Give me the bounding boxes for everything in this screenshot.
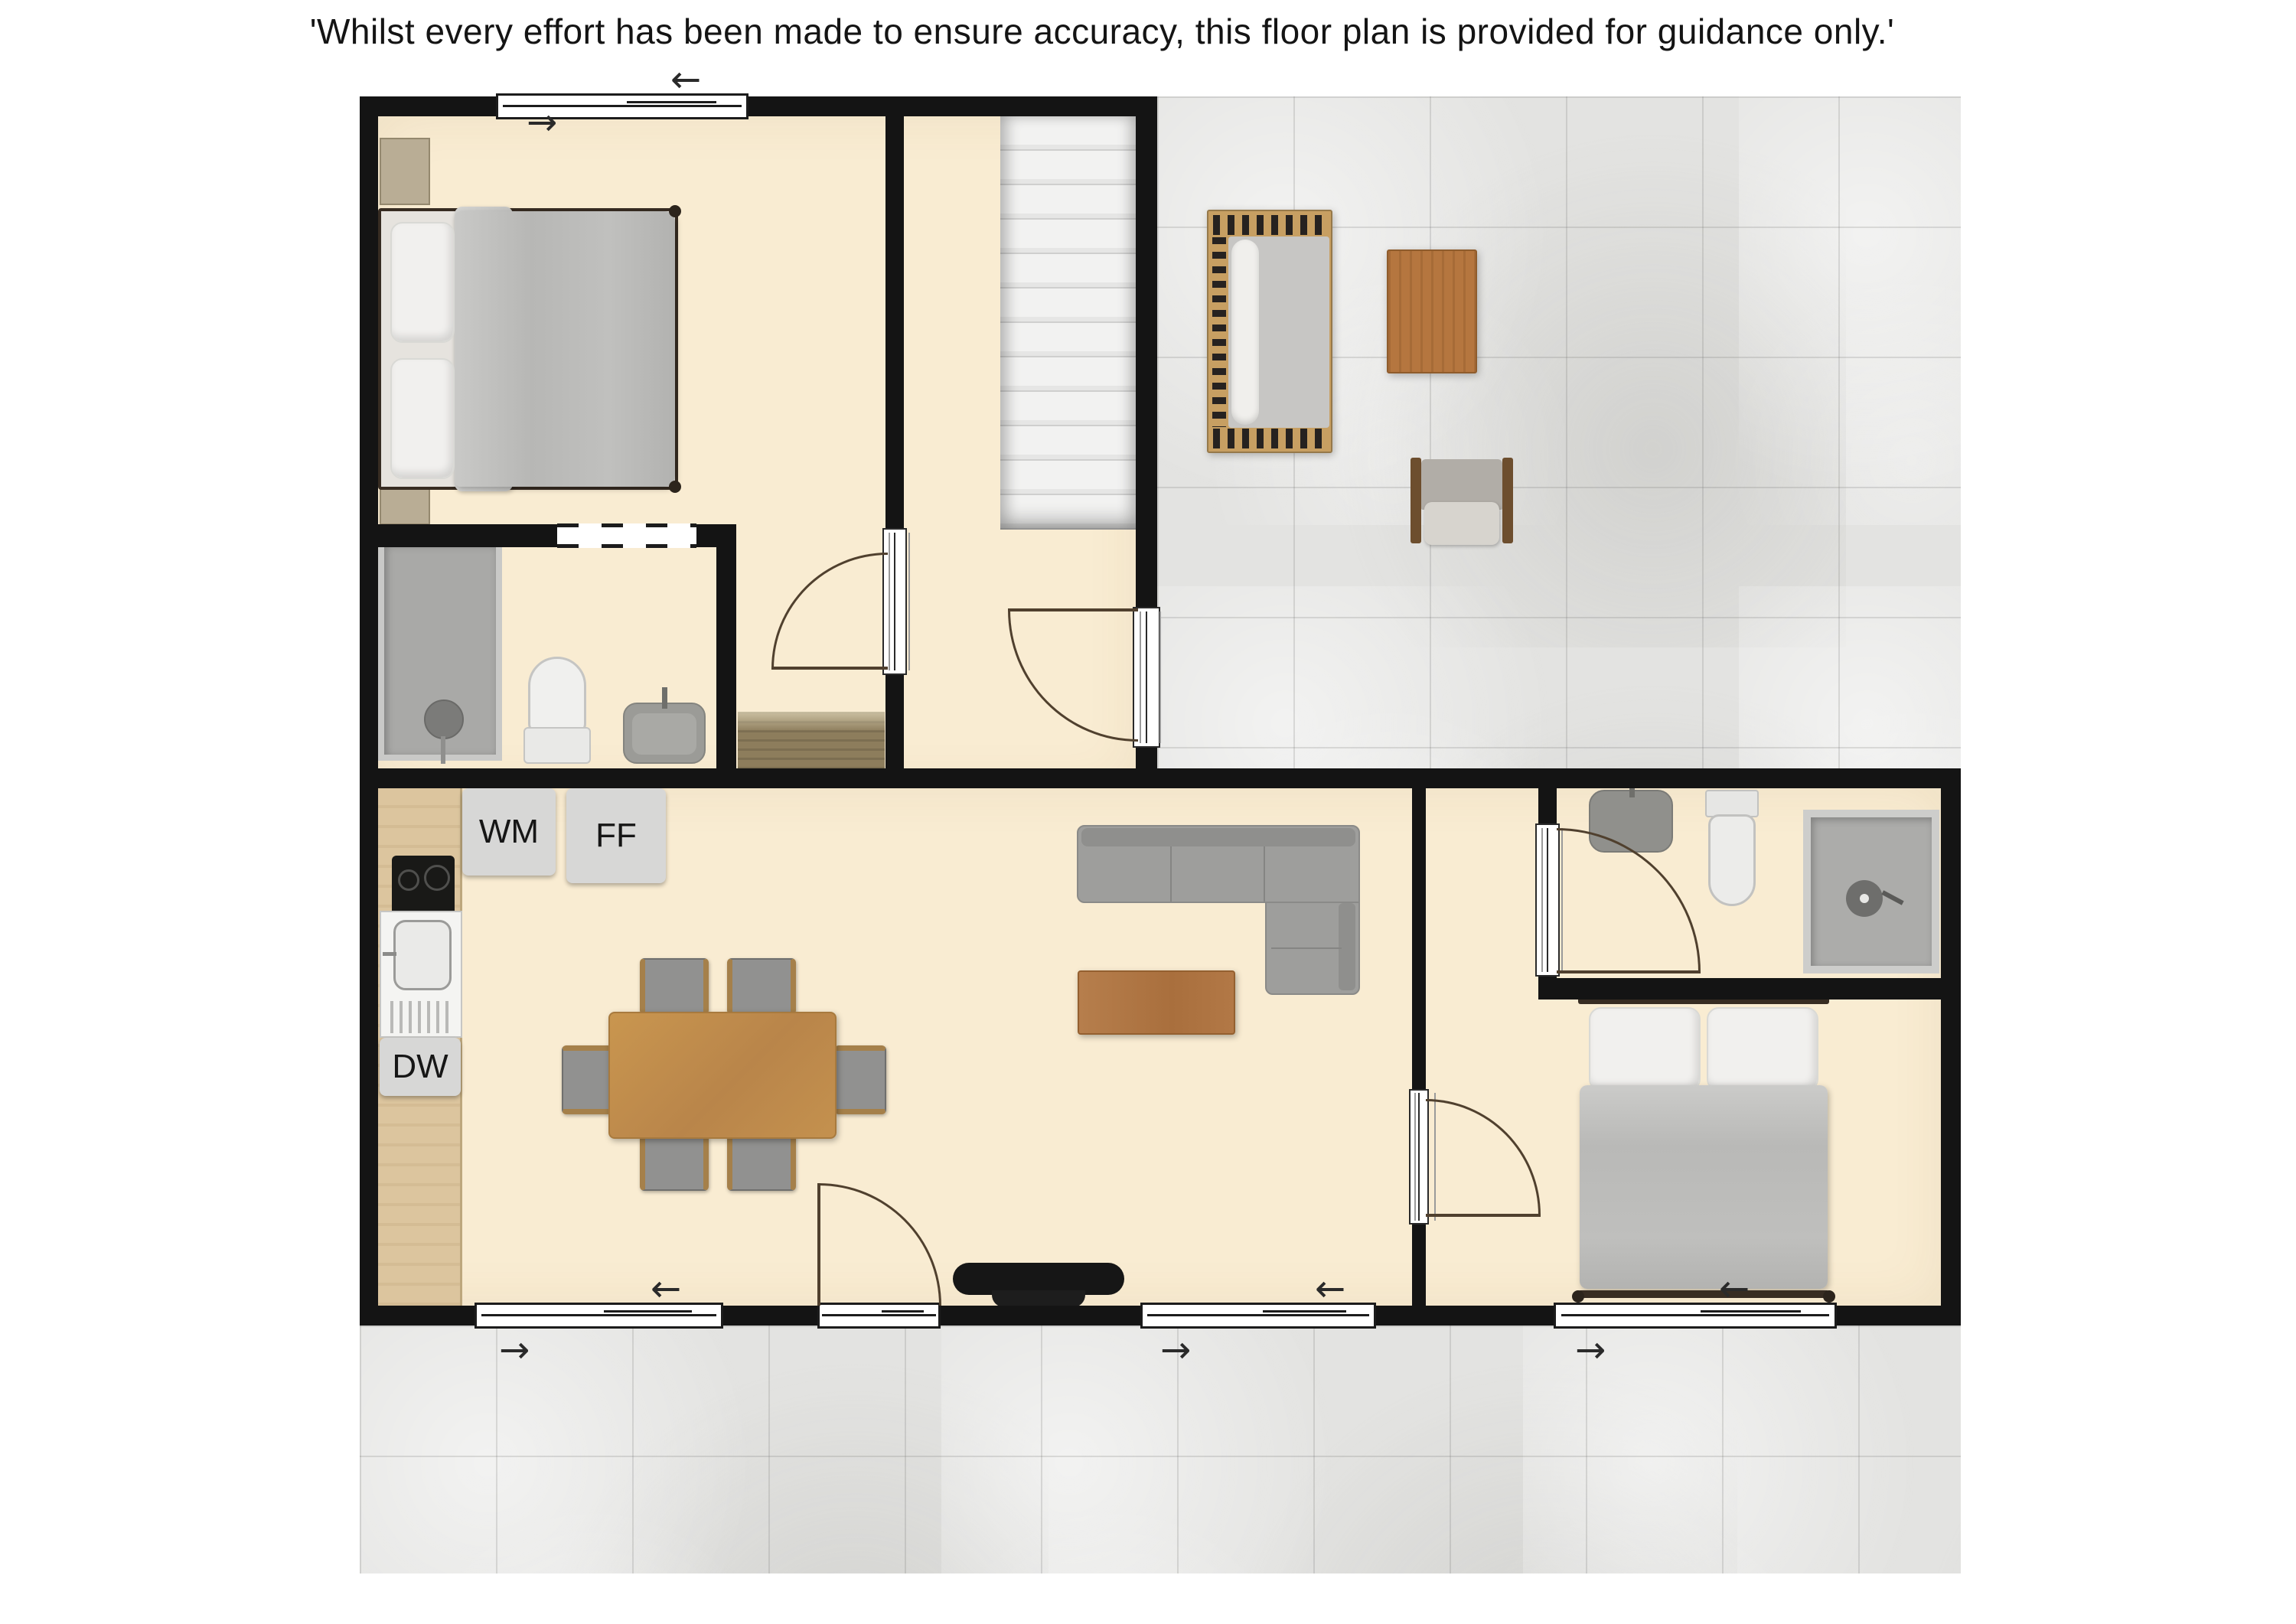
bedside-table-top xyxy=(380,138,430,205)
wood-floor-entry-mat xyxy=(738,712,885,768)
wall-bedroom1-hall xyxy=(885,96,904,788)
dishwasher: DW xyxy=(380,1038,461,1096)
shower-drain-icon xyxy=(424,699,464,739)
sofa-seam xyxy=(1271,947,1342,949)
bed1-duvet xyxy=(455,211,675,487)
bed1-pillow xyxy=(390,222,455,343)
dishwasher-label: DW xyxy=(392,1048,448,1086)
dining-table xyxy=(608,1012,837,1139)
toilet-ensuite xyxy=(1708,814,1756,906)
wall-ensuite-bottom xyxy=(1538,978,1961,1000)
kitchen-drainer xyxy=(390,1001,455,1033)
sofa-seam xyxy=(1170,846,1172,902)
door-leaf-ensuite xyxy=(1557,970,1701,973)
toilet-bathroom xyxy=(528,657,586,733)
garden-chair-seat xyxy=(1424,502,1499,545)
dining-chair xyxy=(562,1045,614,1114)
disclaimer-text: 'Whilst every effort has been made to en… xyxy=(0,11,2204,52)
wall-bathroom-right xyxy=(716,524,736,788)
kitchen-sink-basin xyxy=(393,920,452,990)
shower-tray-bathroom xyxy=(378,537,502,761)
bed2-footboard xyxy=(1578,1290,1829,1298)
garden-sofa-slats xyxy=(1213,215,1328,235)
tap-icon xyxy=(662,687,667,709)
basin-bathroom xyxy=(623,703,706,764)
garden-sofa-slats xyxy=(1212,237,1226,427)
kitchen-tap-icon xyxy=(383,952,396,956)
sofa-seam xyxy=(1264,846,1265,902)
shower-handle-icon xyxy=(1881,890,1903,905)
dining-chair xyxy=(727,958,796,1015)
basin-bowl xyxy=(632,713,696,755)
door-leaf-entrance xyxy=(817,1183,820,1306)
arrow-right-icon: → xyxy=(1160,1332,1191,1368)
sofa-section xyxy=(1265,902,1360,995)
toilet-cistern-ensuite xyxy=(1705,790,1759,817)
dining-chair xyxy=(727,1134,796,1191)
bed1-pillow xyxy=(390,358,455,479)
bed2-post xyxy=(1823,1290,1835,1303)
fridge-freezer: FF xyxy=(566,788,666,883)
coffee-table xyxy=(1078,970,1235,1035)
garden-chair xyxy=(1411,458,1513,548)
bed2-pillow xyxy=(1707,1007,1818,1091)
arrow-right-icon: → xyxy=(527,104,557,141)
dining-chair xyxy=(834,1045,886,1114)
bed1-post xyxy=(669,481,681,493)
door-leaf-hall-patio xyxy=(1008,608,1138,611)
burner-icon xyxy=(424,865,450,891)
fridge-freezer-label: FF xyxy=(595,817,637,855)
shower-head-dot xyxy=(1860,894,1869,903)
bed2-duvet xyxy=(1580,1085,1828,1289)
window-kitchen xyxy=(475,1303,723,1329)
floor-plan-page: 'Whilst every effort has been made to en… xyxy=(0,0,2296,1624)
double-bed-1 xyxy=(378,208,678,490)
staircase xyxy=(1000,116,1137,530)
bed1-post xyxy=(669,205,681,217)
wall-living-bedroom2 xyxy=(1412,788,1426,1306)
corner-sofa xyxy=(1077,825,1360,995)
door-leaf-vestibule xyxy=(771,667,888,670)
bed2-post xyxy=(1572,1290,1584,1303)
door-leaf-bedroom2 xyxy=(1426,1214,1541,1217)
toilet-cistern-bathroom xyxy=(523,727,591,764)
window-bedroom2 xyxy=(1554,1303,1837,1329)
tv-stand xyxy=(992,1290,1085,1307)
arrow-right-icon: → xyxy=(1575,1332,1606,1368)
garden-table xyxy=(1387,249,1477,373)
arrow-left-icon: ← xyxy=(1315,1270,1345,1307)
washing-machine-label: WM xyxy=(479,813,539,851)
arrow-right-icon: → xyxy=(499,1332,530,1368)
shower-ensuite xyxy=(1803,810,1939,973)
wall-middle-long xyxy=(360,768,1961,788)
door-opening-entrance xyxy=(817,1303,941,1329)
garden-chair-arm xyxy=(1411,458,1421,543)
garden-chair-arm xyxy=(1502,458,1513,543)
garden-sofa-slats xyxy=(1213,429,1328,448)
sofa-backrest xyxy=(1081,828,1355,846)
window-internal-bathroom xyxy=(557,523,696,548)
washing-machine: WM xyxy=(462,788,556,876)
garden-sofa-pillow xyxy=(1231,240,1259,425)
arrow-left-icon: ← xyxy=(651,1270,681,1307)
bed2-pillow xyxy=(1589,1007,1701,1091)
garden-sofa xyxy=(1207,210,1332,453)
burner-icon xyxy=(398,869,419,891)
shower-pipe-icon xyxy=(441,736,445,764)
wall-left xyxy=(360,96,378,1326)
double-bed-2 xyxy=(1577,995,1831,1303)
arrow-left-icon: ← xyxy=(1719,1270,1750,1307)
wall-top xyxy=(360,96,1157,116)
kitchen-sink-unit xyxy=(380,911,462,1038)
dining-chair xyxy=(640,1134,709,1191)
arrow-left-icon: ← xyxy=(670,61,701,98)
dining-chair xyxy=(640,958,709,1015)
sofa-backrest xyxy=(1339,903,1355,990)
wall-right xyxy=(1941,768,1961,1326)
